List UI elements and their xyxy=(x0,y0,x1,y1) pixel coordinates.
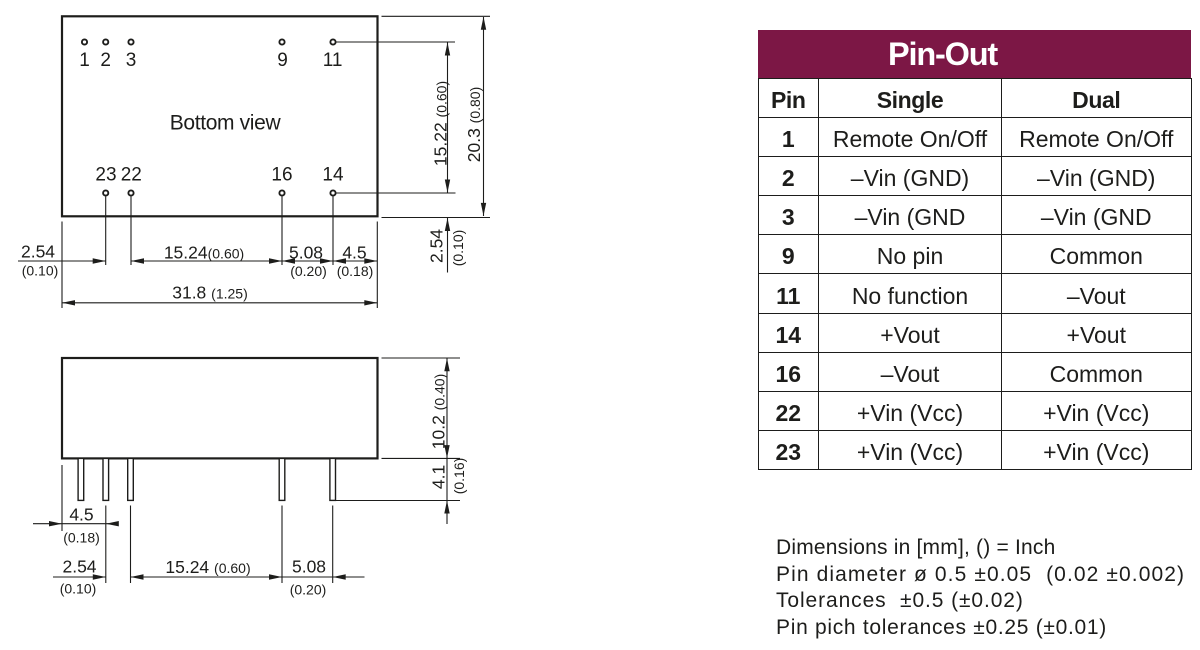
svg-text:9: 9 xyxy=(277,50,288,71)
svg-text:15.24 (0.60): 15.24 (0.60) xyxy=(165,557,250,577)
svg-text:15.24(0.60): 15.24(0.60) xyxy=(164,243,244,263)
svg-text:23: 23 xyxy=(95,165,116,186)
svg-text:2.54: 2.54 xyxy=(427,229,447,263)
svg-text:(0.10): (0.10) xyxy=(450,230,466,267)
svg-text:20.3 (0.80): 20.3 (0.80) xyxy=(464,87,484,163)
svg-text:(0.10): (0.10) xyxy=(60,581,97,597)
svg-text:(0.18): (0.18) xyxy=(63,530,100,546)
svg-text:31.8 (1.25): 31.8 (1.25) xyxy=(172,283,248,303)
svg-text:Bottom view: Bottom view xyxy=(170,112,282,135)
svg-text:4.5: 4.5 xyxy=(342,243,366,263)
svg-text:(0.20): (0.20) xyxy=(290,582,327,598)
svg-text:14: 14 xyxy=(322,165,344,186)
svg-text:11: 11 xyxy=(323,50,343,71)
svg-text:5.08: 5.08 xyxy=(292,557,326,577)
svg-text:(0.18): (0.18) xyxy=(337,263,374,279)
svg-text:15.22 (0.60): 15.22 (0.60) xyxy=(431,81,451,166)
svg-text:16: 16 xyxy=(271,165,292,186)
svg-text:(0.16): (0.16) xyxy=(451,458,467,495)
svg-text:5.08: 5.08 xyxy=(289,243,323,263)
svg-text:(0.20): (0.20) xyxy=(290,263,327,279)
svg-text:2.54: 2.54 xyxy=(21,242,55,262)
svg-text:2: 2 xyxy=(100,50,111,71)
svg-text:1: 1 xyxy=(79,50,90,71)
svg-text:4.1: 4.1 xyxy=(429,465,449,489)
svg-text:(0.10): (0.10) xyxy=(22,263,59,279)
svg-text:2.54: 2.54 xyxy=(62,557,96,577)
svg-text:22: 22 xyxy=(121,165,142,186)
svg-text:10.2 (0.40): 10.2 (0.40) xyxy=(429,374,449,450)
svg-text:3: 3 xyxy=(126,50,137,71)
svg-text:4.5: 4.5 xyxy=(69,505,93,525)
